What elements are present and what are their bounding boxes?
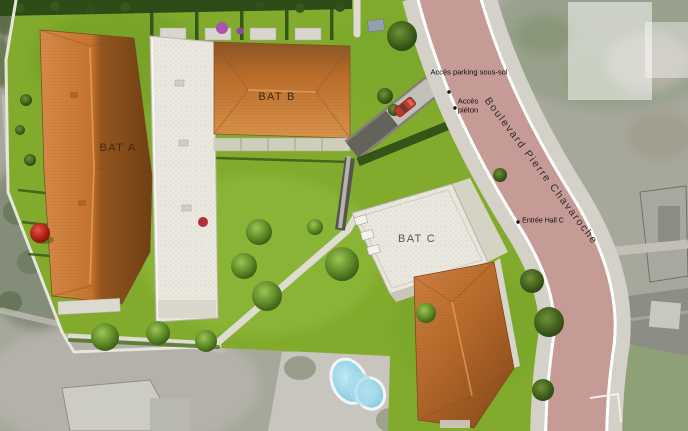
building-bat-b bbox=[214, 42, 350, 151]
purple-bush bbox=[237, 28, 244, 35]
marker-dot-pieton bbox=[453, 106, 456, 109]
purple-bush bbox=[216, 22, 228, 34]
flower-bush bbox=[198, 217, 208, 227]
building-bat-a-flat-roof bbox=[150, 36, 218, 322]
marker-dot-hall-c bbox=[516, 220, 519, 223]
building-bat-a bbox=[40, 30, 152, 315]
site-plan-image: BAT A BAT B BAT C Accès parking sous-sol… bbox=[0, 0, 688, 431]
pool-area bbox=[268, 348, 404, 431]
marker-dot-parking bbox=[447, 90, 450, 93]
site-plan-scene bbox=[0, 0, 688, 431]
